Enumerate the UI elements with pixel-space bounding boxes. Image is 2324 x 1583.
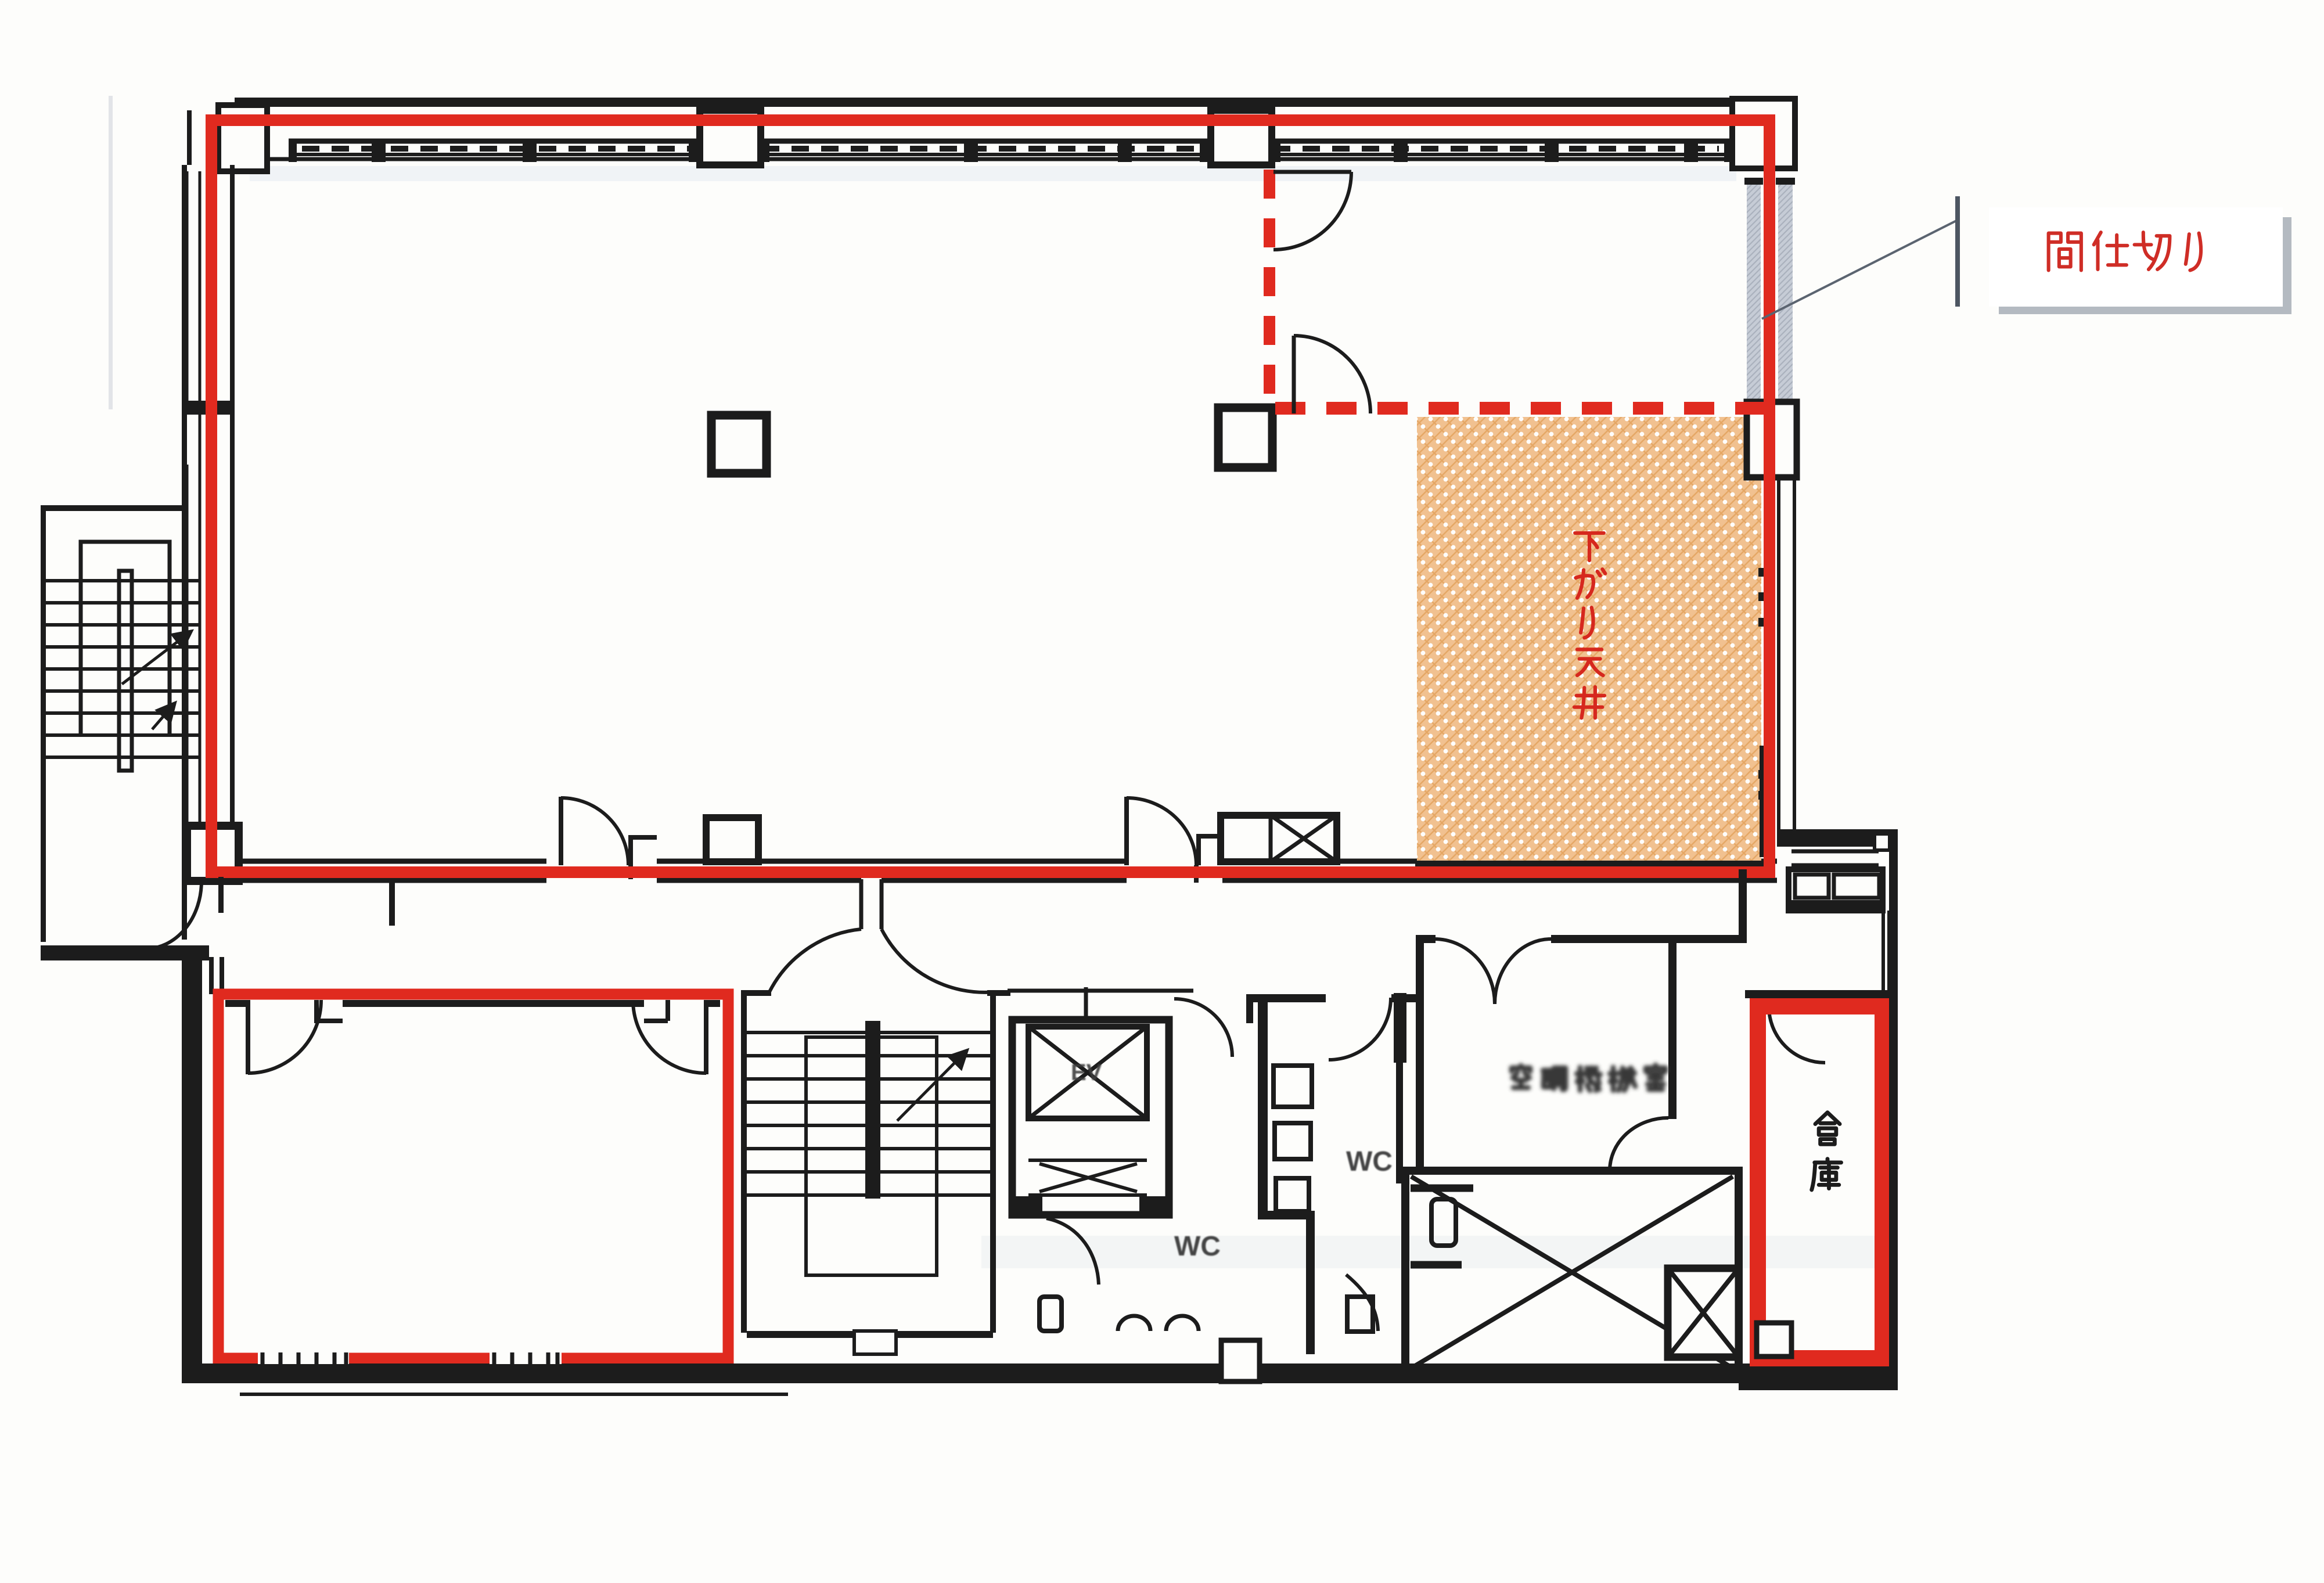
svg-text:WC: WC xyxy=(1346,1146,1393,1177)
svg-text:EV: EV xyxy=(1071,1060,1102,1085)
svg-text:WC: WC xyxy=(1174,1231,1221,1262)
